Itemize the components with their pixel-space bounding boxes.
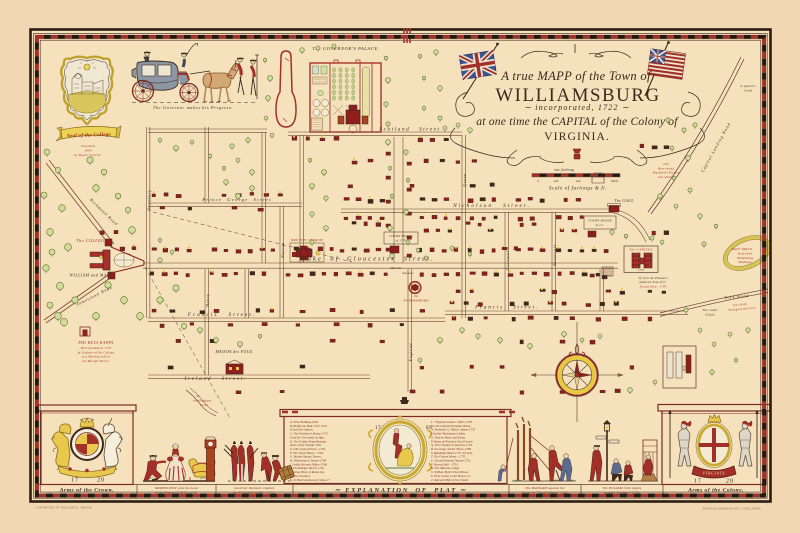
- svg-text:Williamsburg: Williamsburg: [737, 257, 754, 260]
- svg-text:Market: Market: [389, 266, 402, 270]
- svg-text:The CAPITOL: The CAPITOL: [629, 248, 653, 252]
- svg-text:Boundary: Boundary: [148, 189, 152, 210]
- svg-text:Duke of Gloucester Street.: Duke of Gloucester Street.: [300, 256, 435, 263]
- svg-text:440: 440: [576, 179, 581, 183]
- svg-text:The COLLEGE: The COLLEGE: [76, 238, 107, 243]
- svg-text:Creek: Creek: [200, 403, 209, 407]
- svg-text:Scene of the: Scene of the: [738, 253, 753, 256]
- svg-text:Nassau: Nassau: [281, 242, 285, 259]
- svg-text:Archibaldque: Archibaldque: [192, 399, 212, 403]
- svg-text:The GAOL: The GAOL: [614, 199, 634, 203]
- svg-text:Arms of the Crown.: Arms of the Crown.: [59, 488, 114, 494]
- svg-text:Handicaps: Handicaps: [737, 261, 751, 264]
- svg-text:660 ft.: 660 ft.: [611, 179, 619, 183]
- svg-text:last sailing: last sailing: [658, 175, 674, 179]
- svg-text:20: 20: [97, 478, 105, 484]
- svg-text:Francis Street.: Francis Street.: [474, 305, 539, 311]
- svg-text:made the Seat of it": made the Seat of it": [639, 280, 667, 284]
- svg-text:Francis Street.: Francis Street.: [187, 312, 257, 318]
- svg-text:by Royal Charter.: by Royal Charter.: [74, 153, 102, 157]
- svg-text:17: 17: [71, 478, 79, 484]
- svg-text:17: 17: [375, 426, 381, 431]
- svg-text:Nicholson Street.: Nicholson Street.: [452, 203, 531, 209]
- svg-text:1705: 1705: [638, 269, 645, 272]
- svg-text:Henry: Henry: [206, 293, 210, 308]
- svg-text:Colonial: Colonial: [506, 250, 510, 270]
- svg-text:to Queen's: to Queen's: [740, 84, 756, 88]
- svg-text:Creek: Creek: [744, 89, 753, 93]
- svg-text:one furlong: one furlong: [554, 168, 574, 172]
- svg-text:Estate: Estate: [704, 313, 715, 317]
- svg-text:Second Story - 1705: Second Story - 1705: [640, 286, 667, 289]
- svg-text:of 17..: of 17..: [596, 223, 605, 227]
- svg-text:PHOTO & ENGRAVED BY C. LENZ, P: PHOTO & ENGRAVED BY C. LENZ, PHILA.: [702, 508, 762, 511]
- svg-text:the: the: [196, 394, 201, 398]
- svg-text:K. St Heart Apothecary Shop-17: K. St Heart Apothecary Shop-17: [289, 478, 330, 482]
- svg-text:1693: 1693: [84, 149, 92, 153]
- svg-text:at one time the CAPITAL of the: at one time the CAPITAL of the Colony of: [476, 115, 679, 128]
- svg-text:The Governor makes his Progres: The Governor makes his Progress.: [153, 105, 233, 110]
- svg-text:PHI BETA KAPPA: PHI BETA KAPPA: [77, 341, 113, 345]
- svg-text:A true MAPP of the Town of: A true MAPP of the Town of: [500, 69, 652, 83]
- svg-text:Scotland Street: Scotland Street: [379, 127, 440, 133]
- svg-text:The Custis: The Custis: [702, 308, 718, 312]
- svg-text:COURT HOUSE: COURT HOUSE: [588, 219, 612, 223]
- svg-text:Founded: Founded: [80, 144, 95, 148]
- svg-text:COPYRIGHT BY WILLIAM O. BAUER.: COPYRIGHT BY WILLIAM O. BAUER.: [35, 506, 92, 510]
- svg-text:20: 20: [726, 479, 734, 485]
- svg-text:Scale of furlongs & ft.: Scale of furlongs & ft.: [549, 187, 607, 192]
- svg-text:220: 220: [554, 179, 559, 183]
- svg-text:WILLIAM and MARY: WILLIAM and MARY: [70, 273, 113, 278]
- svg-text:Z. Tazewell Hall of Tory South: Z. Tazewell Hall of Tory South.: [431, 478, 469, 482]
- svg-text:POWDERHORN: POWDERHORN: [402, 299, 429, 303]
- svg-text:of 1770: of 1770: [396, 239, 407, 243]
- svg-text:The GOVERNOR'S PALACE.: The GOVERNOR'S PALACE.: [312, 46, 379, 51]
- svg-text:MAISON des FOUX: MAISON des FOUX: [214, 350, 252, 354]
- svg-text:Arms of the Colony.: Arms of the Colony.: [687, 488, 744, 494]
- svg-text:RACE TRACK: RACE TRACK: [731, 247, 753, 251]
- svg-text:the: the: [414, 294, 419, 298]
- svg-text:England: England: [409, 343, 413, 362]
- svg-text:Queen: Queen: [463, 173, 467, 187]
- svg-text:Botetourt: Botetourt: [553, 244, 557, 266]
- svg-text:the Raleigh Tavern.: the Raleigh Tavern.: [82, 359, 109, 363]
- svg-text:∼ incorporated, 1722 ∼: ∼ incorporated, 1722 ∼: [524, 103, 630, 112]
- svg-text:Prince George Street: Prince George Street: [201, 197, 272, 202]
- svg-text:∼ EXPLANATION OF PLAT ∼: ∼ EXPLANATION OF PLAT ∼: [335, 487, 467, 494]
- svg-text:Square: Square: [402, 271, 413, 275]
- svg-text:Ireland Street.: Ireland Street.: [184, 376, 248, 382]
- svg-text:17: 17: [694, 479, 702, 485]
- svg-text:VIRGINIA.: VIRGINIA.: [544, 129, 610, 143]
- svg-text:VIRGINIA: VIRGINIA: [703, 472, 726, 476]
- svg-text:BRUTON CHURCH: BRUTON CHURCH: [291, 238, 323, 242]
